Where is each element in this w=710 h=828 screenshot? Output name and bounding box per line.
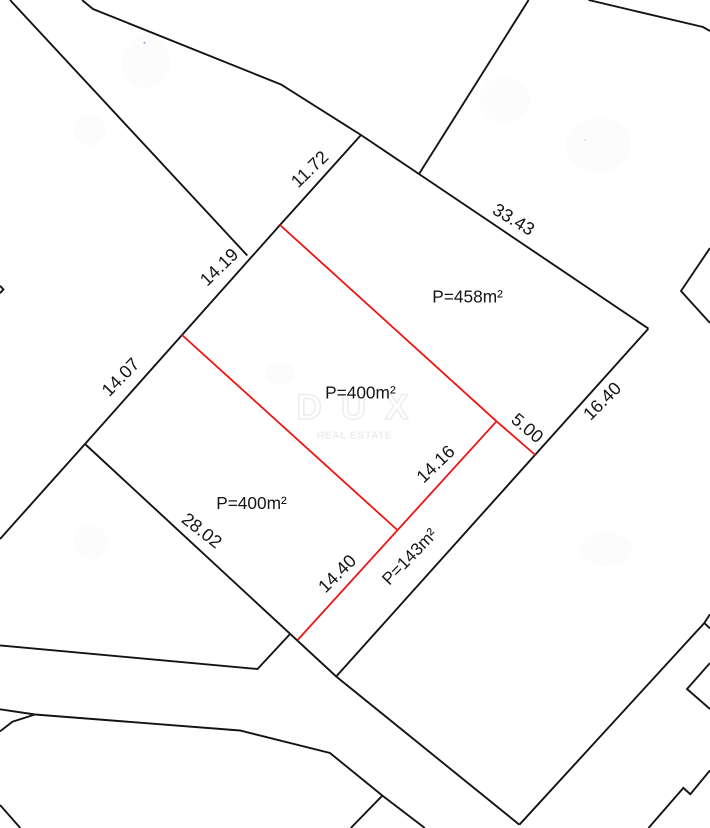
- svg-text:P=400m²: P=400m²: [325, 382, 396, 402]
- svg-text:P=458m²: P=458m²: [432, 286, 503, 306]
- svg-text:P=400m²: P=400m²: [216, 493, 287, 513]
- svg-text:REAL ESTATE: REAL ESTATE: [317, 430, 393, 442]
